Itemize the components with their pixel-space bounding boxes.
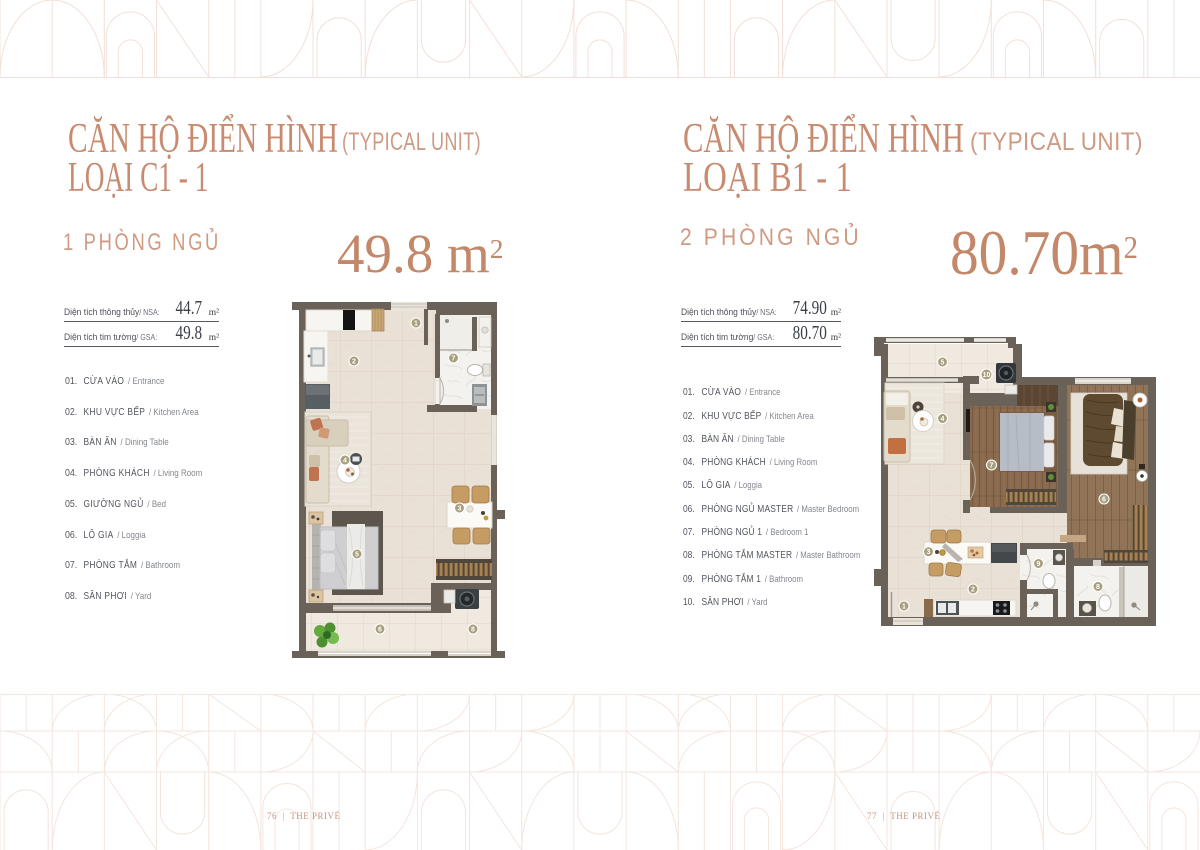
svg-text:9: 9 (1037, 561, 1041, 568)
svg-text:3: 3 (927, 549, 931, 556)
svg-text:7: 7 (990, 462, 994, 469)
svg-text:3: 3 (458, 505, 462, 512)
svg-text:5: 5 (355, 551, 359, 558)
svg-text:10: 10 (983, 372, 991, 379)
svg-text:2: 2 (352, 358, 356, 365)
svg-text:4: 4 (941, 416, 945, 423)
svg-text:8: 8 (1096, 584, 1100, 591)
svg-text:2: 2 (971, 586, 975, 593)
svg-text:6: 6 (378, 626, 382, 633)
svg-text:8: 8 (471, 626, 475, 633)
svg-text:6: 6 (1102, 496, 1106, 503)
svg-text:4: 4 (343, 457, 347, 464)
svg-text:5: 5 (941, 359, 945, 366)
svg-text:1: 1 (902, 603, 906, 610)
svg-text:7: 7 (452, 355, 456, 362)
svg-text:1: 1 (414, 320, 418, 327)
